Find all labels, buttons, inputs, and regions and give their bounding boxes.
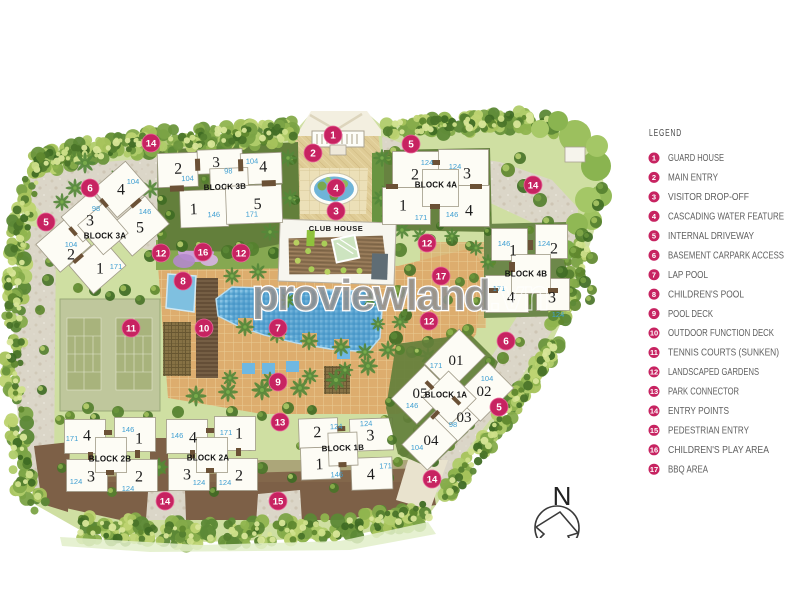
- svg-text:146: 146: [330, 470, 343, 479]
- svg-text:11: 11: [650, 348, 658, 357]
- svg-text:2: 2: [310, 148, 316, 159]
- svg-text:BLOCK 1A: BLOCK 1A: [425, 391, 468, 400]
- svg-text:3: 3: [183, 466, 191, 483]
- svg-text:146: 146: [498, 239, 511, 248]
- svg-text:ENTRY POINTS: ENTRY POINTS: [668, 406, 729, 417]
- svg-text:3: 3: [652, 193, 656, 202]
- svg-text:3: 3: [87, 468, 95, 485]
- svg-text:146: 146: [139, 207, 152, 216]
- svg-text:124: 124: [193, 478, 206, 487]
- svg-text:3: 3: [333, 206, 339, 217]
- svg-text:1: 1: [399, 197, 407, 214]
- svg-text:171: 171: [415, 213, 428, 222]
- svg-text:6: 6: [87, 183, 93, 194]
- svg-text:BLOCK 1B: BLOCK 1B: [322, 443, 365, 453]
- svg-text:146: 146: [171, 431, 184, 440]
- svg-text:BASEMENT CARPARK ACCESS: BASEMENT CARPARK ACCESS: [668, 250, 784, 261]
- svg-text:2: 2: [652, 173, 656, 182]
- svg-text:171: 171: [110, 262, 123, 271]
- svg-text:124: 124: [449, 162, 462, 171]
- svg-text:12: 12: [422, 238, 433, 249]
- svg-text:171: 171: [66, 434, 79, 443]
- svg-text:PEDESTRIAN ENTRY: PEDESTRIAN ENTRY: [668, 426, 749, 437]
- svg-text:8: 8: [652, 290, 656, 299]
- svg-text:5: 5: [408, 139, 414, 150]
- svg-text:16: 16: [650, 445, 658, 454]
- svg-text:15: 15: [273, 496, 284, 507]
- svg-text:LAP POOL: LAP POOL: [668, 270, 708, 281]
- svg-text:124: 124: [70, 477, 83, 486]
- svg-text:CHILDREN'S PLAY AREA: CHILDREN'S PLAY AREA: [668, 445, 769, 456]
- svg-text:6: 6: [503, 336, 509, 347]
- svg-text:146: 146: [122, 425, 135, 434]
- svg-text:4: 4: [189, 429, 197, 446]
- svg-text:4: 4: [259, 159, 268, 176]
- svg-text:14: 14: [427, 474, 438, 485]
- svg-text:16: 16: [198, 247, 209, 258]
- svg-text:2: 2: [235, 467, 243, 484]
- svg-text:BLOCK 3A: BLOCK 3A: [84, 232, 127, 241]
- svg-text:CHILDREN'S POOL: CHILDREN'S POOL: [668, 289, 744, 300]
- svg-text:12: 12: [156, 248, 167, 259]
- svg-text:124: 124: [219, 478, 232, 487]
- svg-text:98: 98: [449, 420, 457, 429]
- svg-text:104: 104: [246, 156, 259, 165]
- svg-text:PARK CONNECTOR: PARK CONNECTOR: [668, 387, 739, 398]
- svg-text:146: 146: [406, 401, 419, 410]
- svg-text:10: 10: [199, 323, 210, 334]
- svg-text:12: 12: [236, 248, 247, 259]
- svg-text:LANDSCAPED GARDENS: LANDSCAPED GARDENS: [668, 367, 759, 378]
- svg-text:10: 10: [650, 329, 658, 338]
- svg-text:171: 171: [245, 209, 258, 218]
- svg-text:17: 17: [650, 465, 658, 474]
- svg-text:02: 02: [477, 384, 492, 400]
- svg-text:17: 17: [436, 271, 447, 282]
- svg-text:2: 2: [550, 240, 558, 257]
- svg-text:171: 171: [430, 361, 443, 370]
- svg-text:BLOCK 2A: BLOCK 2A: [187, 454, 230, 463]
- svg-text:15: 15: [650, 426, 658, 435]
- svg-text:CLUB HOUSE: CLUB HOUSE: [309, 224, 364, 233]
- svg-text:1: 1: [135, 430, 143, 447]
- svg-text:2: 2: [135, 468, 143, 485]
- svg-text:171: 171: [220, 428, 233, 437]
- svg-text:104: 104: [481, 374, 494, 383]
- svg-text:7: 7: [275, 323, 281, 334]
- svg-text:CASCADING WATER FEATURE: CASCADING WATER FEATURE: [668, 212, 784, 223]
- svg-text:5: 5: [496, 402, 502, 413]
- svg-text:104: 104: [65, 240, 78, 249]
- svg-text:BLOCK 4A: BLOCK 4A: [415, 181, 458, 190]
- svg-text:5: 5: [43, 217, 49, 228]
- svg-text:04: 04: [424, 433, 440, 449]
- svg-text:4: 4: [367, 466, 376, 483]
- svg-text:3: 3: [366, 427, 375, 444]
- svg-text:9: 9: [652, 309, 656, 318]
- svg-text:14: 14: [650, 407, 659, 416]
- svg-text:13: 13: [275, 417, 286, 428]
- svg-text:4: 4: [465, 202, 473, 219]
- svg-text:LEGEND: LEGEND: [649, 128, 682, 139]
- svg-text:98: 98: [92, 204, 100, 213]
- svg-text:1: 1: [315, 456, 324, 473]
- svg-text:104: 104: [127, 177, 140, 186]
- svg-text:.vn: .vn: [489, 271, 548, 320]
- svg-text:1: 1: [652, 154, 656, 163]
- svg-text:1: 1: [330, 130, 336, 141]
- svg-text:3: 3: [548, 289, 556, 306]
- svg-text:98: 98: [224, 166, 233, 175]
- svg-text:124: 124: [538, 239, 551, 248]
- svg-text:124: 124: [330, 422, 343, 431]
- svg-text:171: 171: [379, 461, 392, 470]
- svg-text:12: 12: [424, 316, 435, 327]
- svg-text:3: 3: [463, 165, 471, 182]
- svg-text:14: 14: [146, 138, 157, 149]
- svg-text:14: 14: [160, 496, 171, 507]
- svg-text:104: 104: [411, 443, 424, 452]
- svg-text:3: 3: [212, 155, 220, 171]
- svg-text:BBQ AREA: BBQ AREA: [668, 464, 708, 475]
- svg-text:2: 2: [313, 424, 322, 441]
- svg-text:4: 4: [333, 183, 339, 194]
- svg-text:BLOCK 2B: BLOCK 2B: [89, 455, 132, 464]
- svg-text:OUTDOOR FUNCTION DECK: OUTDOOR FUNCTION DECK: [668, 328, 774, 339]
- svg-text:124: 124: [360, 419, 373, 428]
- svg-text:124: 124: [421, 158, 434, 167]
- svg-text:TENNIS COURTS (SUNKEN): TENNIS COURTS (SUNKEN): [668, 348, 779, 359]
- svg-text:01: 01: [449, 353, 464, 369]
- svg-text:146: 146: [446, 210, 459, 219]
- svg-text:4: 4: [83, 427, 91, 444]
- svg-text:9: 9: [275, 377, 281, 388]
- svg-text:4: 4: [117, 181, 125, 198]
- svg-text:146: 146: [207, 210, 220, 219]
- svg-text:6: 6: [652, 251, 656, 260]
- svg-text:7: 7: [652, 270, 656, 279]
- svg-text:INTERNAL DRIVEWAY: INTERNAL DRIVEWAY: [668, 231, 754, 242]
- svg-text:104: 104: [181, 174, 194, 183]
- svg-text:8: 8: [180, 276, 186, 287]
- svg-text:VISITOR DROP-OFF: VISITOR DROP-OFF: [668, 192, 749, 203]
- svg-text:11: 11: [126, 323, 137, 334]
- svg-text:1: 1: [96, 260, 104, 277]
- svg-text:13: 13: [650, 387, 658, 396]
- svg-text:1: 1: [235, 425, 243, 442]
- svg-text:03: 03: [457, 410, 472, 426]
- svg-text:POOL DECK: POOL DECK: [668, 309, 713, 320]
- svg-text:2: 2: [67, 246, 75, 263]
- svg-text:3: 3: [86, 212, 94, 229]
- svg-text:124: 124: [552, 310, 565, 319]
- svg-text:BLOCK 3B: BLOCK 3B: [204, 182, 247, 192]
- svg-text:5: 5: [136, 219, 144, 236]
- svg-text:MAIN ENTRY: MAIN ENTRY: [668, 173, 718, 184]
- svg-text:1: 1: [189, 201, 198, 218]
- svg-text:12: 12: [650, 368, 658, 377]
- svg-text:proviewland: proviewland: [252, 271, 489, 320]
- svg-text:GUARD HOUSE: GUARD HOUSE: [668, 153, 724, 164]
- svg-text:5: 5: [652, 231, 656, 240]
- svg-text:124: 124: [122, 484, 135, 493]
- svg-text:14: 14: [528, 180, 539, 191]
